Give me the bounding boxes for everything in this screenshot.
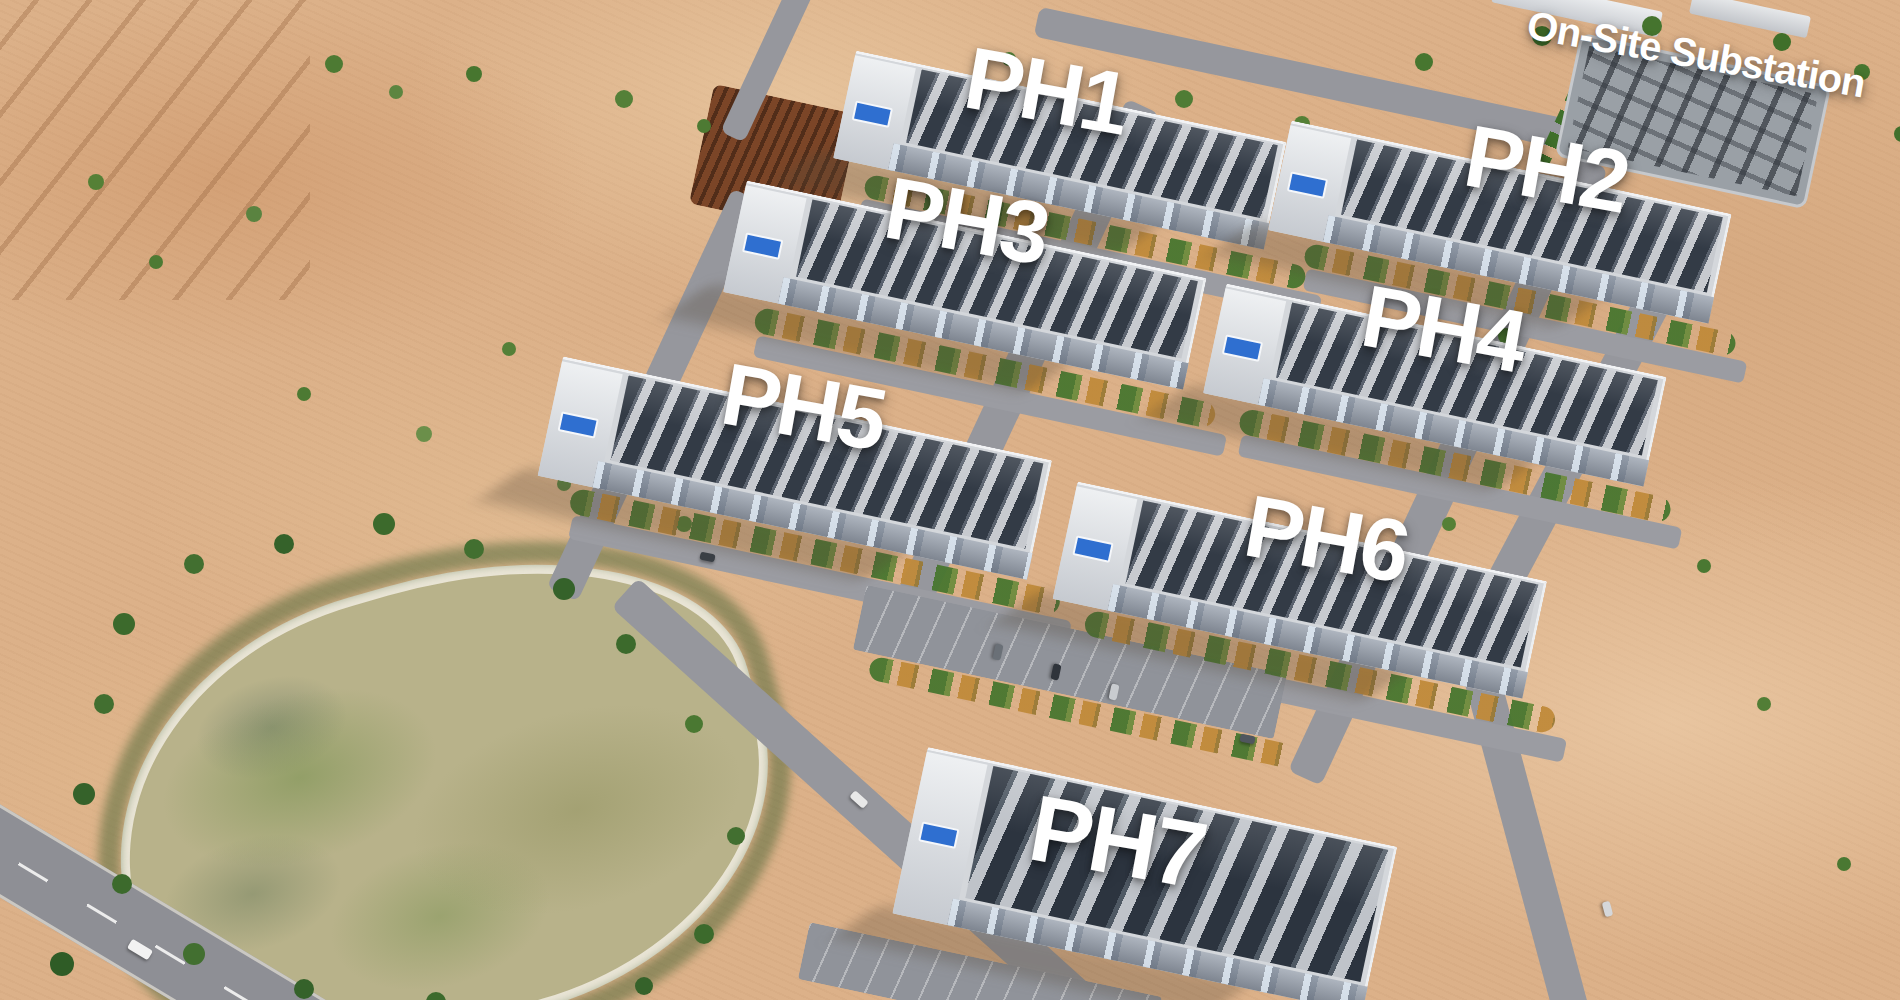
desert-dirt-tracks (0, 0, 310, 300)
blue-sign (558, 411, 599, 438)
blue-sign (1072, 536, 1113, 563)
blue-sign (1222, 334, 1263, 361)
blue-sign (852, 101, 893, 128)
blue-sign (742, 232, 783, 259)
park-perimeter-trees (0, 0, 8, 8)
blue-sign (1287, 171, 1328, 198)
car (1602, 901, 1614, 918)
background-structure (1689, 0, 1811, 38)
blue-sign (918, 822, 959, 849)
aerial-campus-render: PH1 PH2 PH3 PH4 PH5 PH6 PH7 On-Site Subs… (0, 0, 1900, 1000)
